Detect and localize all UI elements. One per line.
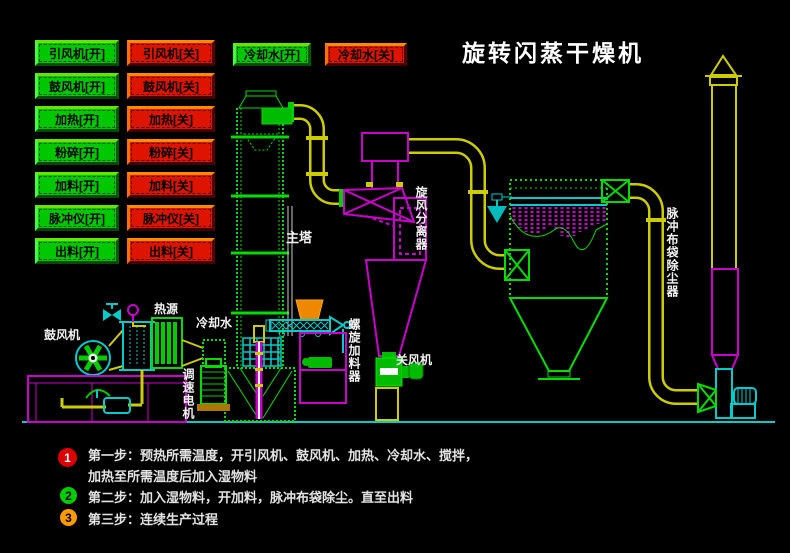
pipe-tower-to-cyclone xyxy=(288,102,344,207)
step-3-badge: 3 xyxy=(60,509,77,526)
pulse-on-button[interactable]: 脉冲仪[开] xyxy=(35,205,119,231)
main-tower-label: 主塔 xyxy=(286,227,312,246)
step-1-line-2: 加热至所需温度后加入湿物料 xyxy=(88,466,257,485)
pulse-blower-icon xyxy=(487,194,512,223)
heat-source-label: 热源 xyxy=(154,300,178,317)
step-1-line-1: 第一步：预热所需温度，开引风机、鼓风机、加热、冷却水、搅拌， xyxy=(88,445,478,464)
heat-source-box xyxy=(152,318,182,368)
page-title: 旋转闪蒸干燥机 xyxy=(462,34,644,68)
blower-label: 鼓风机 xyxy=(44,326,80,343)
bag-filter-label: 脉冲布袋除尘器 xyxy=(665,207,679,298)
crusher-off-button[interactable]: 粉碎[关] xyxy=(127,139,215,165)
step-2-line-1: 第二步：加入湿物料，开加料，脉冲布袋除尘。直至出料 xyxy=(88,487,413,506)
bag-filter xyxy=(487,180,629,379)
induced-fan-on-button[interactable]: 引风机[开] xyxy=(35,40,119,66)
valve-icon xyxy=(103,304,121,321)
air-duct xyxy=(109,330,123,370)
pulse-off-button[interactable]: 脉冲仪[关] xyxy=(127,205,215,231)
airlock-label: 关风机 xyxy=(396,351,432,368)
discharge-on-button[interactable]: 出料[开] xyxy=(35,238,119,264)
cyclone-label: 旋风分离器 xyxy=(414,186,428,251)
induced-fan-off-button[interactable]: 引风机[关] xyxy=(127,40,215,66)
blower-on-button[interactable]: 鼓风机[开] xyxy=(35,73,119,99)
air-filter-box xyxy=(119,322,155,370)
step-3-line-1: 第三步：连续生产过程 xyxy=(88,509,218,528)
crusher-on-button[interactable]: 粉碎[开] xyxy=(35,139,119,165)
pipe-bagfilter-to-fan xyxy=(629,191,698,397)
feeder-on-button[interactable]: 加料[开] xyxy=(35,172,119,198)
feeder-off-button[interactable]: 加料[关] xyxy=(127,172,215,198)
screw-feeder-label: 螺旋加料器 xyxy=(347,318,361,383)
main-tower xyxy=(225,91,295,421)
speed-motor xyxy=(197,359,230,411)
speed-motor-label: 调速电机 xyxy=(181,368,195,420)
cooling-water-off-button[interactable]: 冷却水[关] xyxy=(325,43,407,66)
chimney xyxy=(705,56,742,268)
blower-fan xyxy=(76,341,110,375)
hmi-screen: 引风机[开] 鼓风机[开] 加热[开] 粉碎[开] 加料[开] 脉冲仪[开] 出… xyxy=(0,0,790,553)
cooling-water-label: 冷却水 xyxy=(196,314,232,331)
heating-off-button[interactable]: 加热[关] xyxy=(127,106,215,132)
cooling-water-on-button[interactable]: 冷却水[开] xyxy=(233,43,311,66)
blower-off-button[interactable]: 鼓风机[关] xyxy=(127,73,215,99)
discharge-off-button[interactable]: 出料[关] xyxy=(127,238,215,264)
step-2-badge: 2 xyxy=(60,487,77,504)
heating-on-button[interactable]: 加热[开] xyxy=(35,106,119,132)
step-1-badge: 1 xyxy=(58,448,77,467)
hot-air-duct xyxy=(182,340,225,366)
exhaust-fan xyxy=(698,269,756,418)
